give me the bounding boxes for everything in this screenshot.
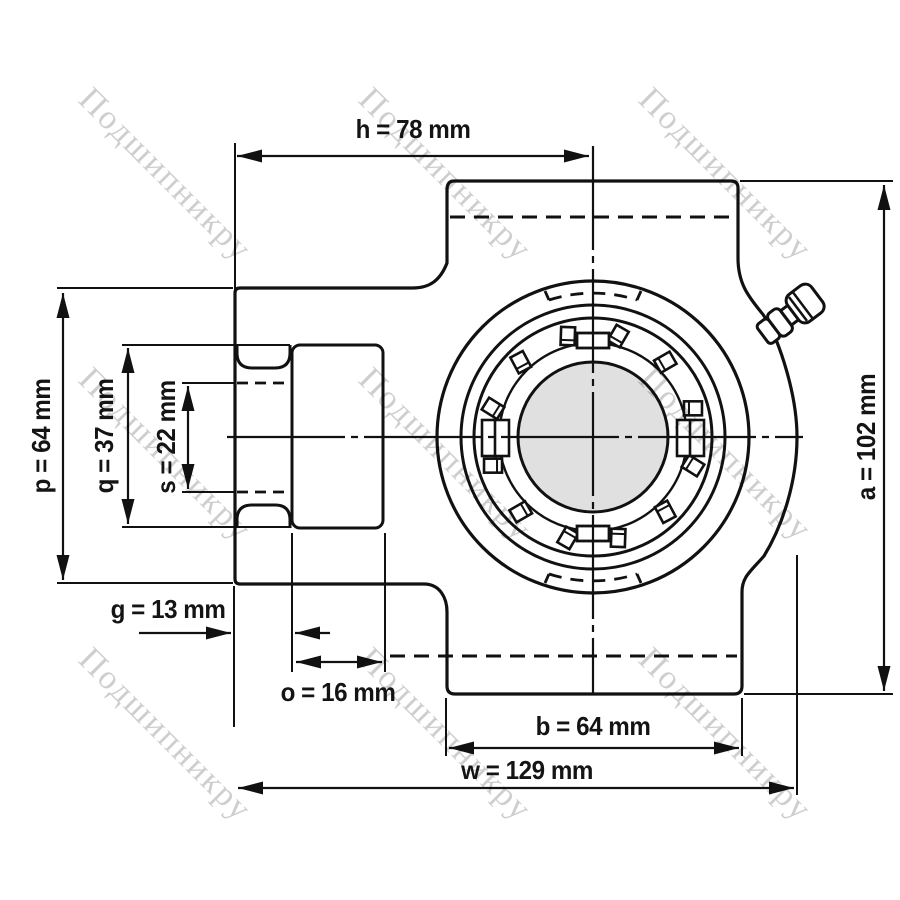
dim-label-g: g = 13 mm: [111, 596, 226, 622]
dim-label-b: b = 64 mm: [536, 713, 651, 739]
dim-label-a: a = 102 mm: [853, 374, 879, 500]
technical-drawing-page: h = 78 mm p = 64 mm q = 37 mm s = 22 mm …: [0, 0, 900, 900]
dim-label-p: p = 64 mm: [28, 379, 54, 494]
